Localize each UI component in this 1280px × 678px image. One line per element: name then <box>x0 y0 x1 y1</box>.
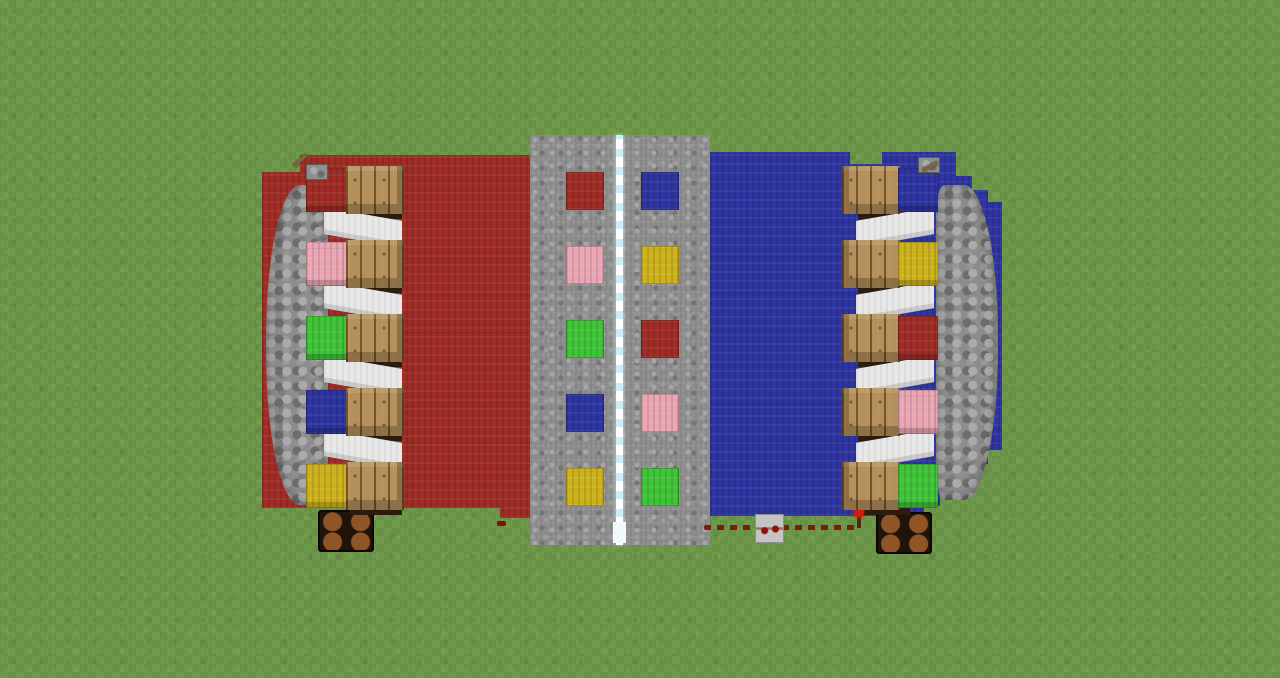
redstone-repeater[interactable] <box>755 514 784 543</box>
redstone-torch-stem <box>857 516 861 528</box>
sequence-cell-right-pink <box>641 394 679 432</box>
oak-plank-block <box>842 388 900 436</box>
lever-left-base[interactable] <box>306 164 328 180</box>
wool-button-pink[interactable] <box>306 242 348 286</box>
sequence-cell-right-yellow <box>641 246 679 284</box>
oak-plank-block <box>346 388 404 436</box>
oak-plank-block <box>346 166 404 214</box>
cobblestone-wall-right <box>936 185 998 500</box>
oak-plank-block <box>346 314 404 362</box>
sequence-cell-right-red <box>641 320 679 358</box>
sequence-cell-right-blue <box>641 172 679 210</box>
minecraft-overhead-scene <box>0 0 1280 678</box>
sequence-cell-left-pink <box>566 246 604 284</box>
sequence-cell-left-red <box>566 172 604 210</box>
wool-button-green[interactable] <box>306 316 348 360</box>
sequence-cell-left-blue <box>566 394 604 432</box>
wool-button-green[interactable] <box>898 464 938 508</box>
wool-button-blue[interactable] <box>898 168 938 212</box>
sequence-cell-right-green <box>641 468 679 506</box>
wool-button-blue[interactable] <box>306 390 348 434</box>
oak-plank-block <box>842 314 900 362</box>
oak-plank-block <box>842 166 900 214</box>
oak-plank-block <box>346 240 404 288</box>
wool-button-red[interactable] <box>898 316 938 360</box>
wool-button-yellow[interactable] <box>898 242 938 286</box>
oak-plank-block <box>346 462 404 510</box>
wool-button-yellow[interactable] <box>306 464 348 508</box>
sequence-cell-left-yellow <box>566 468 604 506</box>
redstone-lamp-left <box>318 510 374 552</box>
divider-end-block <box>613 522 626 543</box>
wool-button-pink[interactable] <box>898 390 938 434</box>
center-divider-line <box>616 135 623 545</box>
redstone-dust-speck <box>497 521 506 526</box>
redstone-lamp-right <box>876 512 932 554</box>
sequence-cell-left-green <box>566 320 604 358</box>
oak-plank-block <box>842 462 900 510</box>
oak-plank-block <box>842 240 900 288</box>
